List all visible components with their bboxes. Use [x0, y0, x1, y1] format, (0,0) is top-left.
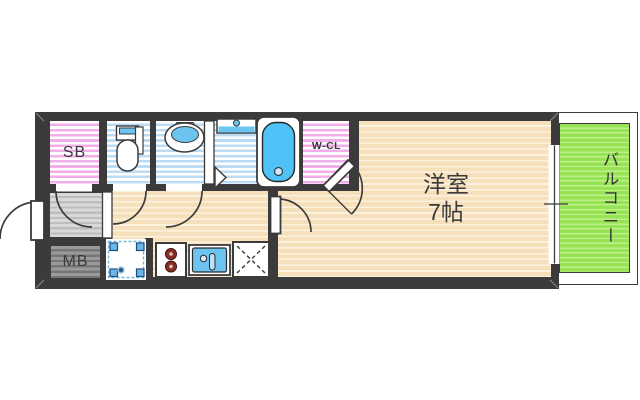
washbasin-icon [165, 123, 204, 153]
balcony-label: バルコニー [593, 118, 625, 278]
main-room-door-arc [278, 199, 311, 232]
gas-stove-icon [156, 243, 186, 277]
sliding-window-icon [544, 145, 568, 264]
bathroom-wall-panel [205, 121, 215, 184]
washing-machine-pan-icon [106, 239, 146, 280]
walk-in-closet-label: W-CL [301, 134, 352, 158]
toilet-door-arc [113, 191, 146, 224]
kitchen-sink-icon [189, 245, 230, 275]
shoe-box-door-arc [56, 191, 92, 227]
bathroom-door-icon [215, 167, 226, 188]
western-room-label: 洋室 7帖 [350, 156, 542, 240]
closet-door-swing-line [326, 189, 352, 215]
western-room-size: 7帖 [428, 198, 464, 226]
toilet-icon [117, 126, 144, 171]
bathtub-icon [257, 117, 300, 187]
shoe-box-label: SB [50, 121, 99, 184]
bath-counter-icon [217, 119, 256, 133]
genkan-partition [103, 192, 113, 238]
door-openings [56, 184, 202, 192]
floor-plan: SB W-CL 洋室 7帖 バルコニー MB [0, 0, 640, 400]
main-room-door [271, 197, 281, 234]
refrigerator-space-icon [233, 242, 269, 277]
washbasin-door-arc [166, 191, 202, 227]
western-room-name: 洋室 [423, 170, 469, 198]
meter-box-label: MB [49, 244, 102, 280]
fixtures-overlay [0, 0, 640, 400]
entrance-door [31, 201, 44, 240]
